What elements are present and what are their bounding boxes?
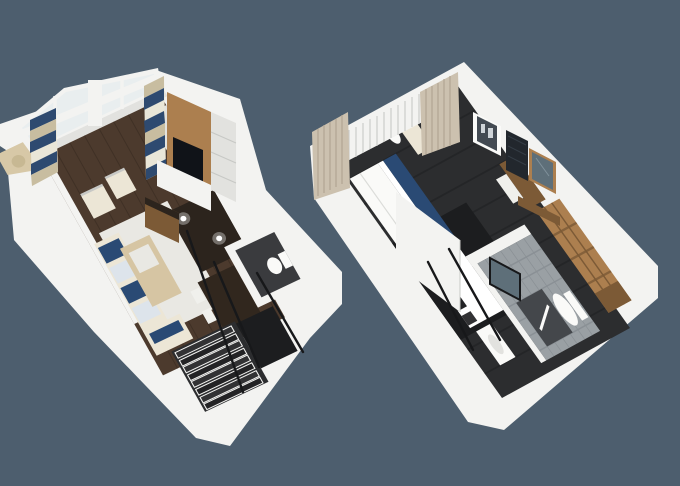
- art-detail: [481, 124, 485, 133]
- floorplan-scene: [0, 0, 680, 486]
- floorplan-svg: [0, 0, 680, 486]
- window-post: [88, 80, 102, 126]
- art-detail: [488, 128, 493, 138]
